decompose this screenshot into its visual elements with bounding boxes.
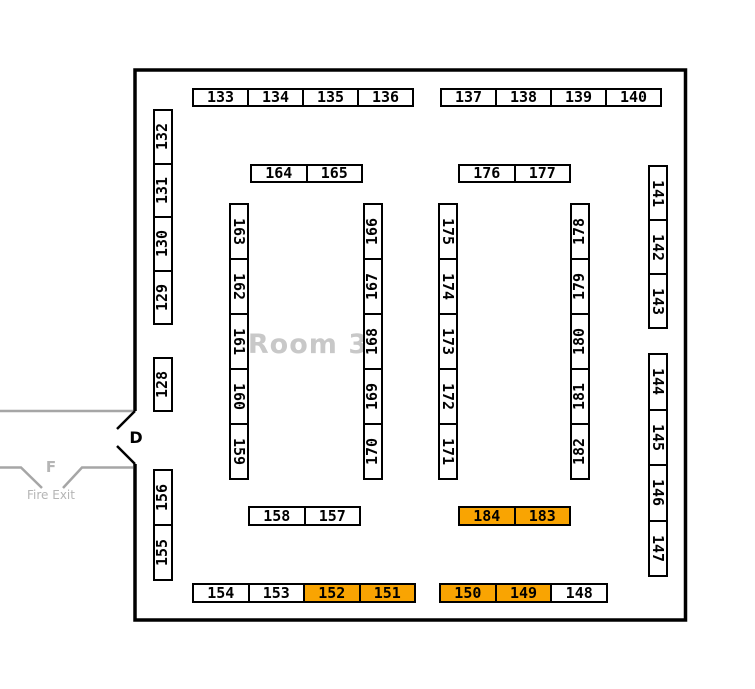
- strip-bottom-row-west: 154153152151: [192, 583, 416, 603]
- booth-160[interactable]: 160: [229, 368, 249, 425]
- booth-number: 163: [232, 218, 247, 245]
- booth-number: 172: [441, 383, 456, 410]
- booth-132[interactable]: 132: [153, 109, 173, 165]
- booth-177[interactable]: 177: [514, 164, 572, 183]
- booth-number: 162: [232, 273, 247, 300]
- fire-exit-text: Fire Exit: [12, 487, 90, 503]
- booth-number: 131: [156, 177, 171, 204]
- booth-135[interactable]: 135: [302, 88, 359, 107]
- booth-number: 146: [651, 479, 666, 506]
- booth-140[interactable]: 140: [605, 88, 662, 107]
- booth-number: 142: [651, 233, 666, 260]
- booth-147[interactable]: 147: [648, 520, 668, 578]
- booth-172[interactable]: 172: [438, 368, 458, 425]
- fire-exit-notch-left: [0, 468, 42, 489]
- booth-number: 161: [232, 328, 247, 355]
- door-label: D: [124, 428, 148, 448]
- strip-top-row-west: 133134135136: [192, 88, 414, 107]
- booth-number: 136: [372, 90, 399, 105]
- strip-right-wall-upper: 141142143: [648, 165, 668, 329]
- booth-number: 139: [565, 90, 592, 105]
- booth-182[interactable]: 182: [570, 423, 590, 480]
- booth-138[interactable]: 138: [495, 88, 552, 107]
- booth-number: 167: [366, 273, 381, 300]
- booth-number: 165: [321, 166, 348, 181]
- booth-164[interactable]: 164: [250, 164, 308, 183]
- booth-number: 184: [473, 509, 500, 524]
- booth-number: 153: [263, 586, 290, 601]
- strip-right-wall-lower: 144145146147: [648, 353, 668, 577]
- booth-163[interactable]: 163: [229, 203, 249, 260]
- door-mark-top: [117, 411, 135, 429]
- booth-170[interactable]: 170: [363, 423, 383, 480]
- fire-exit-letter: F: [39, 458, 63, 476]
- booth-number: 180: [573, 328, 588, 355]
- booth-number: 143: [651, 287, 666, 314]
- booth-number: 171: [441, 438, 456, 465]
- booth-number: 176: [473, 166, 500, 181]
- booth-149[interactable]: 149: [495, 583, 553, 603]
- booth-number: 141: [651, 179, 666, 206]
- booth-175[interactable]: 175: [438, 203, 458, 260]
- booth-137[interactable]: 137: [440, 88, 497, 107]
- booth-number: 154: [207, 586, 234, 601]
- booth-133[interactable]: 133: [192, 88, 249, 107]
- booth-number: 183: [529, 509, 556, 524]
- booth-145[interactable]: 145: [648, 409, 668, 467]
- booth-142[interactable]: 142: [648, 219, 668, 275]
- booth-number: 137: [455, 90, 482, 105]
- booth-number: 173: [441, 328, 456, 355]
- booth-152[interactable]: 152: [303, 583, 361, 603]
- booth-number: 128: [156, 371, 171, 398]
- booth-number: 152: [318, 586, 345, 601]
- booth-number: 149: [510, 586, 537, 601]
- booth-174[interactable]: 174: [438, 258, 458, 315]
- booth-number: 132: [156, 123, 171, 150]
- booth-162[interactable]: 162: [229, 258, 249, 315]
- booth-178[interactable]: 178: [570, 203, 590, 260]
- booth-161[interactable]: 161: [229, 313, 249, 370]
- strip-left-wall-upper: 132131130129: [153, 109, 173, 325]
- strip-row2-east: 176177: [458, 164, 571, 183]
- booth-146[interactable]: 146: [648, 464, 668, 522]
- booth-number: 178: [573, 218, 588, 245]
- booth-number: 130: [156, 230, 171, 257]
- booth-166[interactable]: 166: [363, 203, 383, 260]
- booth-number: 135: [317, 90, 344, 105]
- booth-148[interactable]: 148: [550, 583, 608, 603]
- booth-number: 155: [156, 539, 171, 566]
- booth-number: 156: [156, 484, 171, 511]
- booth-155[interactable]: 155: [153, 524, 173, 581]
- strip-top-row-east: 137138139140: [440, 88, 662, 107]
- booth-number: 182: [573, 438, 588, 465]
- room-wall-outline: [135, 70, 686, 620]
- booth-number: 181: [573, 383, 588, 410]
- booth-176[interactable]: 176: [458, 164, 516, 183]
- booth-number: 145: [651, 424, 666, 451]
- booth-number: 164: [265, 166, 292, 181]
- booth-151[interactable]: 151: [359, 583, 417, 603]
- booth-136[interactable]: 136: [357, 88, 414, 107]
- booth-129[interactable]: 129: [153, 270, 173, 326]
- booth-150[interactable]: 150: [439, 583, 497, 603]
- booth-167[interactable]: 167: [363, 258, 383, 315]
- booth-158[interactable]: 158: [248, 506, 306, 526]
- booth-157[interactable]: 157: [304, 506, 362, 526]
- booth-number: 170: [366, 438, 381, 465]
- booth-173[interactable]: 173: [438, 313, 458, 370]
- booth-165[interactable]: 165: [306, 164, 364, 183]
- fire-exit-notch-right: [63, 468, 133, 489]
- booth-number: 157: [319, 509, 346, 524]
- booth-number: 177: [529, 166, 556, 181]
- booth-number: 174: [441, 273, 456, 300]
- booth-130[interactable]: 130: [153, 216, 173, 272]
- booth-number: 150: [454, 586, 481, 601]
- floor-plan: Room 3 D F Fire Exit 1331341351361371381…: [0, 0, 755, 689]
- strip-aisle2-east: 178179180181182: [570, 203, 590, 480]
- booth-number: 151: [374, 586, 401, 601]
- booth-number: 140: [620, 90, 647, 105]
- booth-180[interactable]: 180: [570, 313, 590, 370]
- booth-131[interactable]: 131: [153, 163, 173, 219]
- booth-number: 158: [263, 509, 290, 524]
- strip-left-wall-mid: 128: [153, 357, 173, 412]
- booth-159[interactable]: 159: [229, 423, 249, 480]
- booth-171[interactable]: 171: [438, 423, 458, 480]
- booth-181[interactable]: 181: [570, 368, 590, 425]
- strip-bottom-row-east: 150149148: [439, 583, 608, 603]
- booth-number: 134: [262, 90, 289, 105]
- booth-number: 179: [573, 273, 588, 300]
- strip-aisle1-west: 163162161160159: [229, 203, 249, 480]
- booth-139[interactable]: 139: [550, 88, 607, 107]
- booth-183[interactable]: 183: [514, 506, 572, 526]
- strip-left-wall-lower: 156155: [153, 469, 173, 581]
- booth-number: 148: [566, 586, 593, 601]
- booth-141[interactable]: 141: [648, 165, 668, 221]
- booth-number: 166: [366, 218, 381, 245]
- strip-mid-bottom-west: 158157: [248, 506, 361, 526]
- booth-154[interactable]: 154: [192, 583, 250, 603]
- booth-number: 160: [232, 383, 247, 410]
- booth-number: 159: [232, 438, 247, 465]
- booth-number: 138: [510, 90, 537, 105]
- booth-156[interactable]: 156: [153, 469, 173, 526]
- booth-number: 168: [366, 328, 381, 355]
- booth-169[interactable]: 169: [363, 368, 383, 425]
- booth-128[interactable]: 128: [153, 357, 173, 412]
- strip-aisle2-west: 175174173172171: [438, 203, 458, 480]
- booth-134[interactable]: 134: [247, 88, 304, 107]
- booth-number: 175: [441, 218, 456, 245]
- booth-184[interactable]: 184: [458, 506, 516, 526]
- strip-aisle1-east: 166167168169170: [363, 203, 383, 480]
- strip-row2-west: 164165: [250, 164, 363, 183]
- booth-number: 133: [207, 90, 234, 105]
- booth-179[interactable]: 179: [570, 258, 590, 315]
- booth-143[interactable]: 143: [648, 273, 668, 329]
- booth-number: 169: [366, 383, 381, 410]
- booth-number: 147: [651, 535, 666, 562]
- booth-number: 129: [156, 284, 171, 311]
- booth-number: 144: [651, 368, 666, 395]
- door-mark-bottom: [117, 446, 135, 464]
- strip-mid-bottom-east: 184183: [458, 506, 571, 526]
- booth-144[interactable]: 144: [648, 353, 668, 411]
- booth-168[interactable]: 168: [363, 313, 383, 370]
- booth-153[interactable]: 153: [248, 583, 306, 603]
